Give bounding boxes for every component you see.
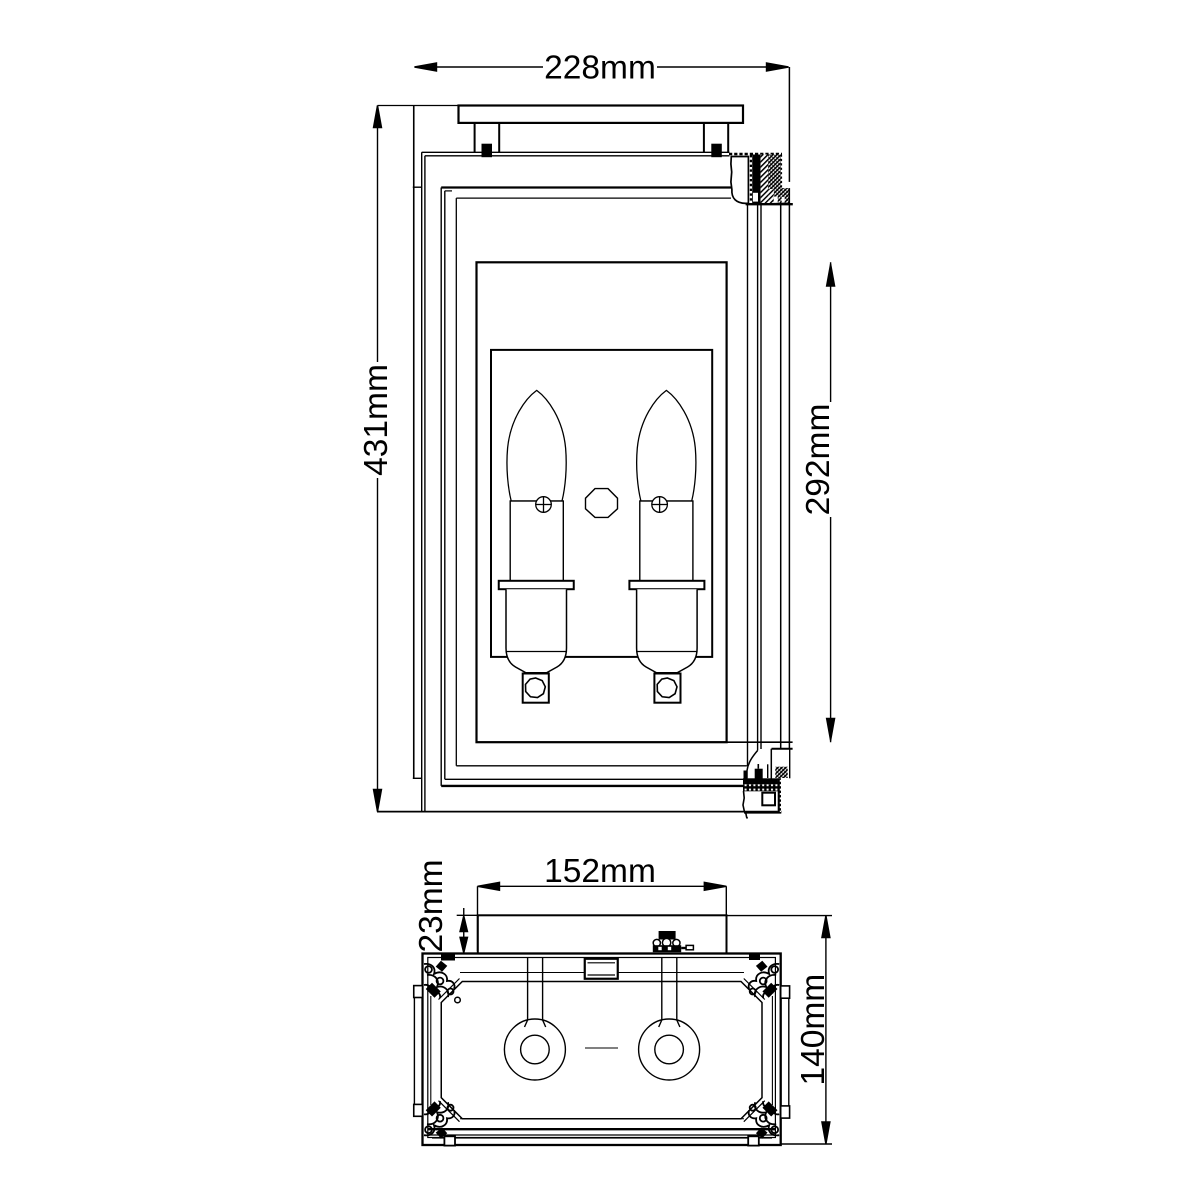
svg-text:23mm: 23mm: [413, 859, 450, 952]
svg-text:140mm: 140mm: [795, 974, 832, 1086]
svg-text:152mm: 152mm: [544, 853, 656, 890]
svg-text:431mm: 431mm: [358, 364, 395, 476]
svg-text:292mm: 292mm: [800, 404, 837, 516]
svg-text:228mm: 228mm: [544, 50, 656, 87]
